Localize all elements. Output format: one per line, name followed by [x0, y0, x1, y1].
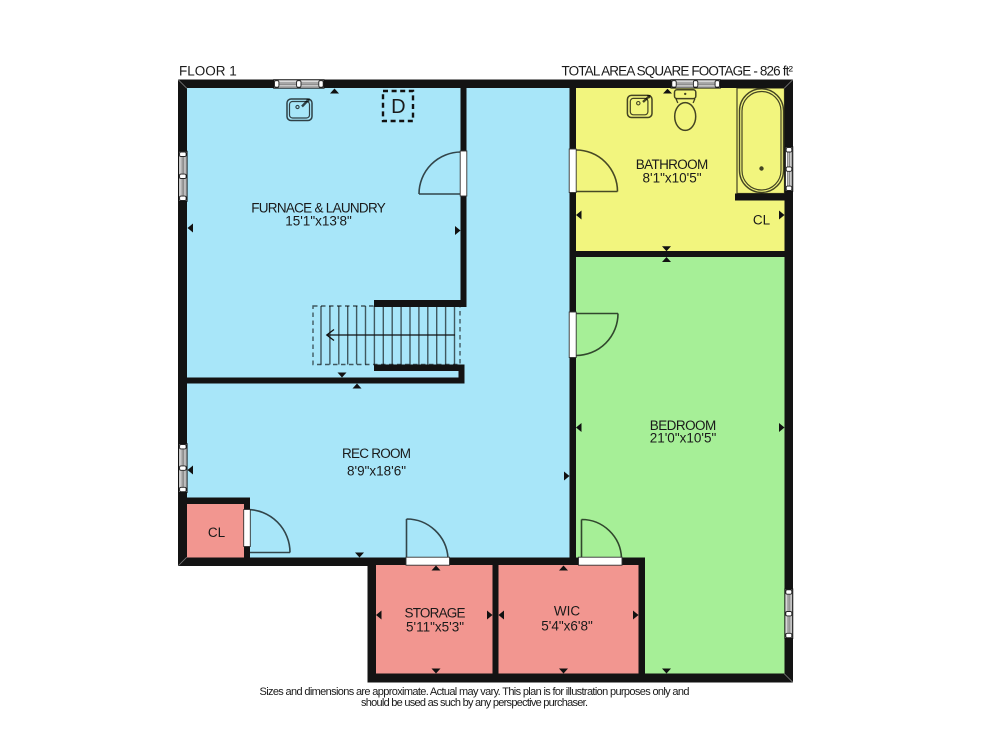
- svg-text:FLOOR 1: FLOOR 1: [179, 63, 237, 78]
- svg-text:15'1"x13'8": 15'1"x13'8": [285, 214, 352, 229]
- svg-text:should be used as such by any: should be used as such by any perspectiv…: [361, 697, 588, 709]
- svg-text:STORAGE: STORAGE: [405, 606, 466, 621]
- svg-text:5'11"x5'3": 5'11"x5'3": [406, 620, 464, 635]
- svg-text:CL: CL: [753, 212, 771, 227]
- svg-text:5'4"x6'8": 5'4"x6'8": [541, 618, 593, 633]
- svg-text:Sizes and dimensions are appro: Sizes and dimensions are approximate. Ac…: [260, 686, 690, 698]
- svg-text:8'1"x10'5": 8'1"x10'5": [642, 170, 701, 185]
- svg-text:TOTAL AREA SQUARE FOOTAGE - 82: TOTAL AREA SQUARE FOOTAGE - 826 ft²: [562, 63, 794, 78]
- svg-text:21'0"x10'5": 21'0"x10'5": [650, 430, 717, 445]
- svg-text:8'9"x18'6": 8'9"x18'6": [347, 464, 406, 479]
- svg-text:CL: CL: [208, 525, 226, 540]
- svg-text:WIC: WIC: [554, 603, 580, 618]
- svg-text:D: D: [391, 96, 405, 118]
- svg-text:REC ROOM: REC ROOM: [342, 446, 411, 461]
